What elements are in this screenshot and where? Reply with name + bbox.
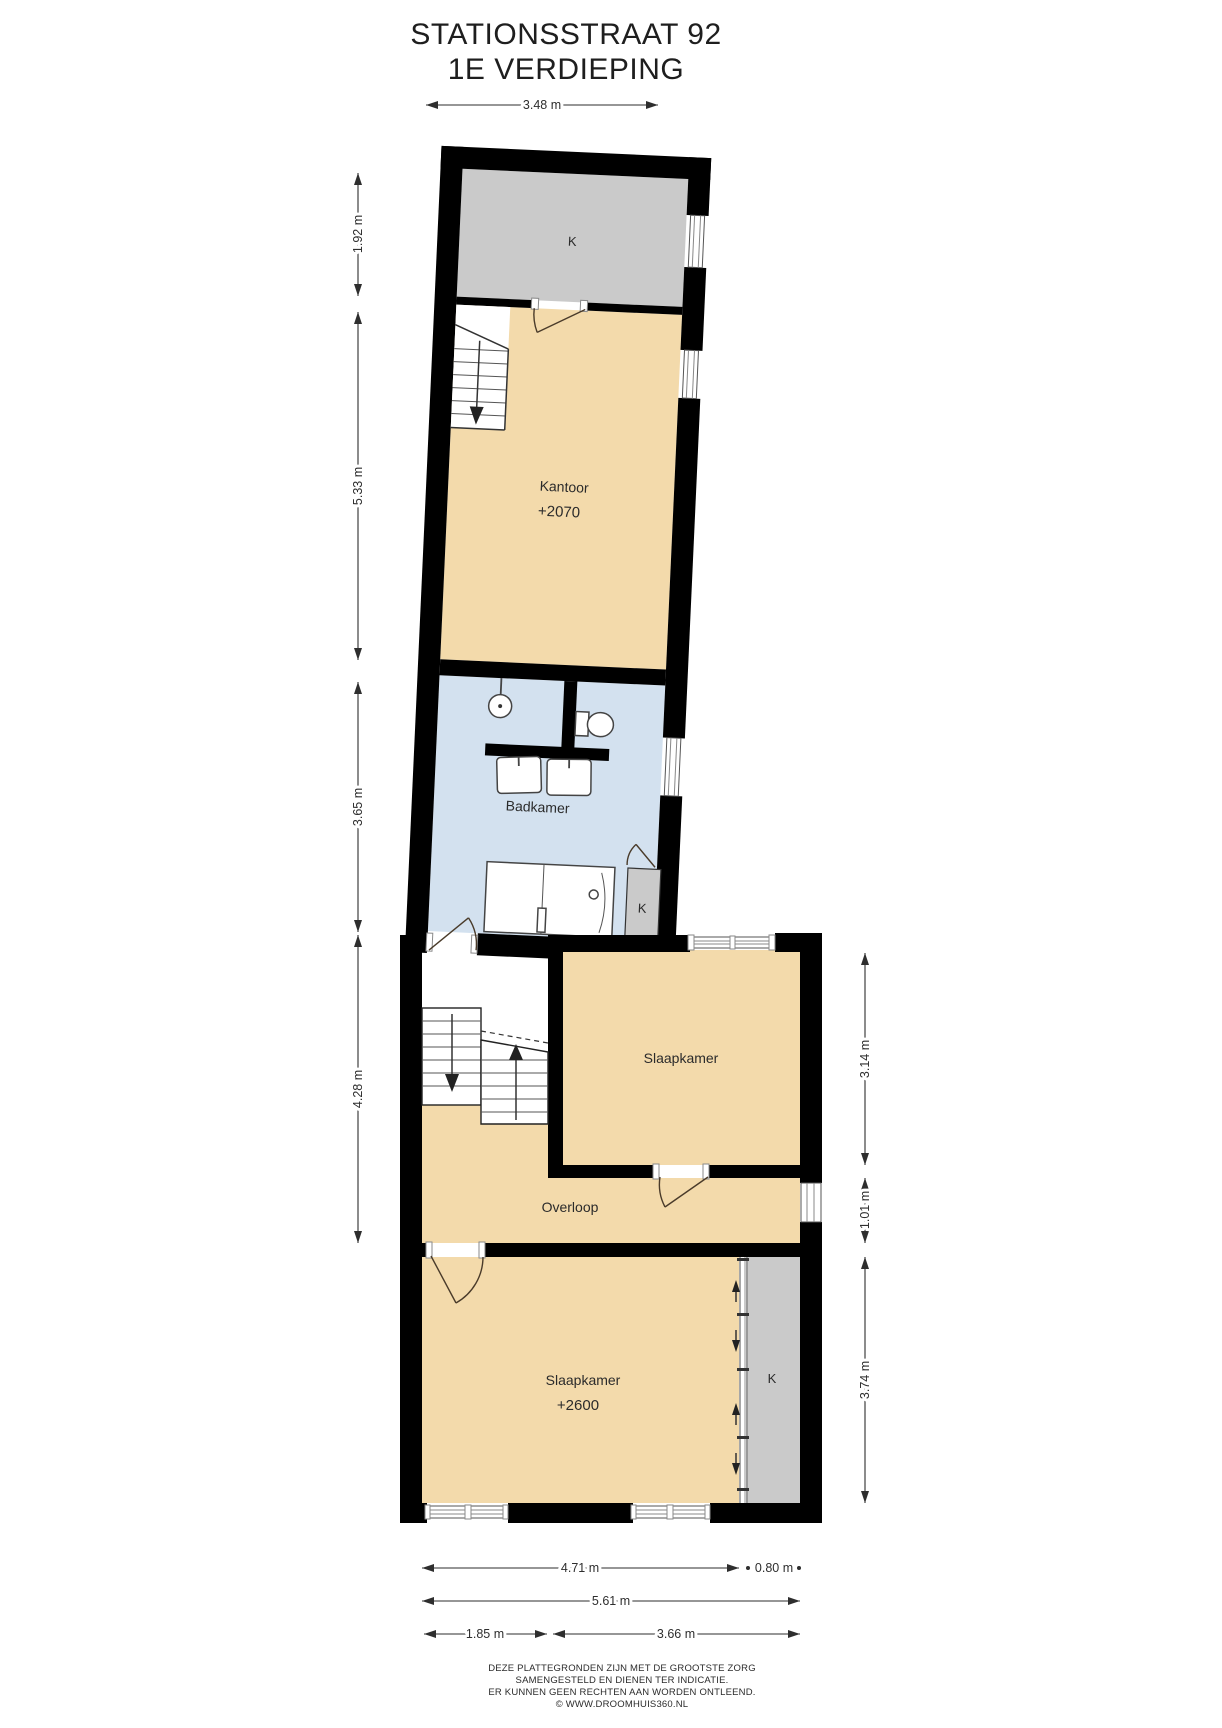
dimension-label: 0.80 m bbox=[755, 1561, 793, 1575]
dimension-top-width: 3.48 m bbox=[426, 98, 658, 112]
floorplan-page: STATIONSSTRAAT 92 1E VERDIEPING bbox=[0, 0, 1222, 1728]
upper-building-section: K Kantoor +2070 Badkamer K bbox=[405, 146, 711, 964]
window-icon bbox=[688, 215, 704, 268]
dimension-label: 3.74 m bbox=[858, 1361, 872, 1399]
footer-disclaimer: DEZE PLATTEGRONDEN ZIJN MET DE GROOTSTE … bbox=[488, 1663, 756, 1710]
page-title-line1: STATIONSSTRAAT 92 bbox=[410, 18, 721, 51]
room-label-kantoor: Kantoor bbox=[539, 478, 589, 496]
dimension-label: 3.65 m bbox=[351, 788, 365, 826]
lower-building-section: Slaapkamer Overloop Slaapkamer +2600 K bbox=[400, 933, 822, 1523]
room-elevation-kantoor: +2070 bbox=[538, 503, 581, 522]
dimension-label: 1.85 m bbox=[466, 1627, 504, 1641]
room-label-closet-top: K bbox=[568, 234, 578, 249]
dimension-left-1: 1.92 m bbox=[351, 173, 365, 296]
dimension-label: 3.14 m bbox=[858, 1040, 872, 1078]
footer-line3: ER KUNNEN GEEN RECHTEN AAN WORDEN ONTLEE… bbox=[488, 1687, 755, 1698]
dimension-bottom-row1: 4.71 m 0.80 m bbox=[422, 1561, 801, 1575]
dimension-label: 1.92 m bbox=[351, 215, 365, 253]
staircase-down-icon bbox=[451, 305, 511, 430]
dimension-label: 5.61 m bbox=[592, 1594, 630, 1608]
room-label-closet-slaapkamer: K bbox=[768, 1371, 777, 1386]
dimension-right-2: 1.01 m bbox=[858, 1178, 872, 1243]
window-icon bbox=[631, 1505, 710, 1519]
window-icon bbox=[682, 350, 698, 399]
dimension-left-2: 5.33 m bbox=[351, 312, 365, 660]
dimension-right-3: 3.74 m bbox=[858, 1257, 872, 1503]
room-label-closet-badkamer: K bbox=[637, 901, 647, 916]
window-icon bbox=[664, 738, 681, 797]
toilet-icon bbox=[575, 712, 614, 738]
dimension-label: 3.48 m bbox=[523, 98, 561, 112]
sink-icon bbox=[497, 756, 542, 793]
bathtub-icon bbox=[484, 862, 615, 938]
footer-line2: SAMENGESTELD EN DIENEN TER INDICATIE. bbox=[516, 1675, 729, 1686]
dimension-label: 5.33 m bbox=[351, 467, 365, 505]
dimension-bottom-row3: 1.85 m 3.66 m bbox=[424, 1627, 800, 1641]
room-label-overloop: Overloop bbox=[542, 1199, 599, 1215]
room-label-slaapkamer-onder: Slaapkamer bbox=[546, 1372, 621, 1388]
room-label-slaapkamer-boven: Slaapkamer bbox=[644, 1050, 719, 1066]
dimension-label: 4.28 m bbox=[351, 1070, 365, 1108]
window-icon bbox=[425, 1505, 508, 1519]
footer-line1: DEZE PLATTEGRONDEN ZIJN MET DE GROOTSTE … bbox=[488, 1663, 756, 1674]
room-overloop-floor bbox=[422, 1105, 548, 1243]
dimension-label: 1.01 m bbox=[858, 1191, 872, 1229]
floorplan-canvas: STATIONSSTRAAT 92 1E VERDIEPING bbox=[0, 0, 1222, 1728]
dimension-label: 4.71 m bbox=[561, 1561, 599, 1575]
dimension-right-1: 3.14 m bbox=[858, 953, 872, 1165]
room-label-badkamer: Badkamer bbox=[505, 797, 570, 816]
dimension-label: 3.66 m bbox=[657, 1627, 695, 1641]
footer-line4: © WWW.DROOMHUIS360.NL bbox=[556, 1699, 689, 1710]
dimension-left-3: 3.65 m bbox=[351, 682, 365, 932]
room-elevation-slaapkamer-onder: +2600 bbox=[557, 1397, 599, 1414]
window-icon bbox=[801, 1183, 821, 1222]
dimension-bottom-row2: 5.61 m bbox=[422, 1594, 800, 1608]
window-icon bbox=[688, 935, 775, 950]
dimension-left-4: 4.28 m bbox=[351, 935, 365, 1243]
sink-icon bbox=[547, 759, 591, 795]
page-title-line2: 1E VERDIEPING bbox=[448, 53, 685, 86]
